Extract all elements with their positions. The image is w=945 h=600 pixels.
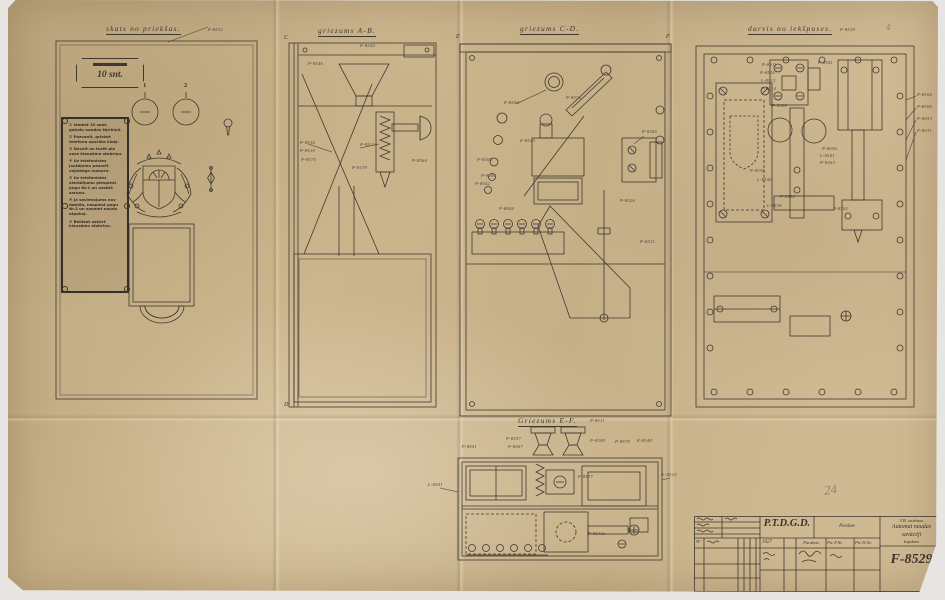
bolt-detail [208,166,215,192]
part-label: P-8556 [822,146,837,151]
part-label: P-8549 [590,438,605,443]
part-label: P-8567 [508,444,523,449]
coin-plate-text: 10 snt. [97,70,123,80]
part-label: P-8516 [300,140,315,145]
part-label: P-8546 [308,61,323,66]
part-label: P-8523 [520,138,535,143]
part-label: P-8526 [620,198,635,203]
drawing-subject: savācēji [882,532,941,538]
drawing-subject: kopskats [882,539,941,544]
keyhole-detail [224,119,232,135]
instruction-item: ⑤ Uz telefonistes aizrādījumu piespiest … [69,176,124,195]
section-cd-drawing [454,20,679,422]
part-label: P-8575 [301,157,316,162]
part-label: P-8502 [833,206,848,211]
instruction-item: ⑥ Ja savienojums nav dabūts, nospiest po… [69,198,124,217]
button-number: 1 [143,82,146,89]
part-label: P-8521 [640,239,655,244]
terminal-strip [472,220,564,255]
part-label: P-8508 [772,103,787,108]
part-label: P-8544 [360,43,375,48]
part-label: P-8557 [506,436,521,441]
part-label: P-8504 [917,92,932,97]
part-label: P-8551 [462,444,477,449]
part-label: P-8513 [360,142,375,147]
year-field: 1927 [762,540,772,545]
part-label: P-8533 [917,116,932,121]
plate-screw [62,286,68,292]
instruction-item: ① Iemest 10 sant. gabalu naudas šķirbiņā… [69,123,124,133]
instruction-item: ② Pazvanīt, griežot telefona aparāta klo… [69,135,124,145]
number-column-header: Nº [696,539,701,544]
part-label: P-8574 [566,95,581,100]
part-label: P-8538 [780,194,795,199]
part-label: P-8504 [481,173,496,178]
paper: skats no priekšas. P-8532 [8,0,938,592]
section-ab-drawing [284,24,444,416]
instruction-item: ④ Uz telefonistes jautājumu pasacīt vaja… [69,159,124,173]
system-designation: V.B. sistēmas [882,518,941,523]
part-label: P-8579 [615,439,630,444]
part-label: L-8542 [757,177,772,182]
part-label: P-8541 [818,60,833,65]
coin-slot-bar [93,63,127,66]
plate-screw [124,203,130,209]
coin-denomination-plate: 10 snt. [76,58,144,88]
plate-screw [62,118,68,124]
pencil-page-number: 24 [823,481,838,499]
part-label: L-8561 [820,153,835,158]
signature-column-header: Paraksts [797,540,825,545]
receiver-hook [140,306,184,323]
notes-column-header: Piezīme [814,524,880,529]
part-label: P-8530a [588,531,606,536]
drawing-subject: Automat naudas [882,524,941,530]
part-label: P-8516 [760,70,775,75]
speaker-grille [129,224,194,306]
panel-section-cd: griezums C-D. E F [454,20,679,422]
part-label: P-8565 [642,129,657,134]
plate-screw [62,203,68,209]
instruction-item: ⑦ Beidzot uzkārt klausāmo stobriņu. [69,220,124,230]
instruction-plate: ① Iemest 10 sant. gabalu naudas šķirbiņā… [61,117,129,293]
grille-backplate [716,83,772,222]
button-number: 2 [184,82,187,89]
title-block: P.T.D.G.D. Piezīme Nº 1927 Paraksts Pie … [694,516,943,592]
part-label: P-8604 [499,206,514,211]
instruction-item: ③ Nocelt un turēt pie auss klausāmo stob… [69,147,124,157]
coat-of-arms-emblem [127,150,191,217]
drawing-number: F-8529 [880,552,943,568]
part-label: E-8548 [637,438,652,443]
part-label: P-8531 [917,128,932,133]
part-label: P-8536 [750,168,765,173]
part-label: P-8530 [504,100,519,105]
part-label: P-8564 [412,158,427,163]
part-label: P-8519 [300,148,315,153]
scanned-sheet: skats no priekšas. P-8532 [0,0,945,600]
panel-door-inside: durvis no iekšpuses. P-8539 4 [690,20,945,412]
part-label: L-8515 [662,472,677,477]
door-inside-drawing [690,20,945,412]
panel-front-view: skats no priekšas. P-8532 [48,22,272,414]
plate-screw [124,118,130,124]
fold-crease [272,0,280,592]
section-ef-drawing [426,414,672,576]
coin-guide-spools [531,427,585,455]
part-label: L-8512 [761,78,776,83]
f-number-column-header: Pie F.Nr. [827,540,843,545]
panel-section-ab: griezums A-B. C D P-8546 [284,24,444,416]
part-label: P-8506 [917,104,932,109]
d-number-column-header: Pie D.Nr. [855,540,872,545]
plate-screw [124,286,130,292]
part-label: P-8502 [475,181,490,186]
part-label: P-8578 [352,165,367,170]
part-label: P-8514 [761,86,776,91]
panel-section-ef: Griezums E-F. P-8511 [426,414,672,576]
part-label: P-8505 [477,157,492,162]
part-label: P-8563 [820,160,835,165]
call-buttons [132,92,199,125]
part-label: P-8577 [578,474,593,479]
perimeter-screws [707,57,903,395]
part-label: L-8558 [767,203,782,208]
organization-name: P.T.D.G.D. [760,518,814,529]
part-label: P-8511 [762,62,777,67]
part-label: L-8501 [428,482,443,487]
